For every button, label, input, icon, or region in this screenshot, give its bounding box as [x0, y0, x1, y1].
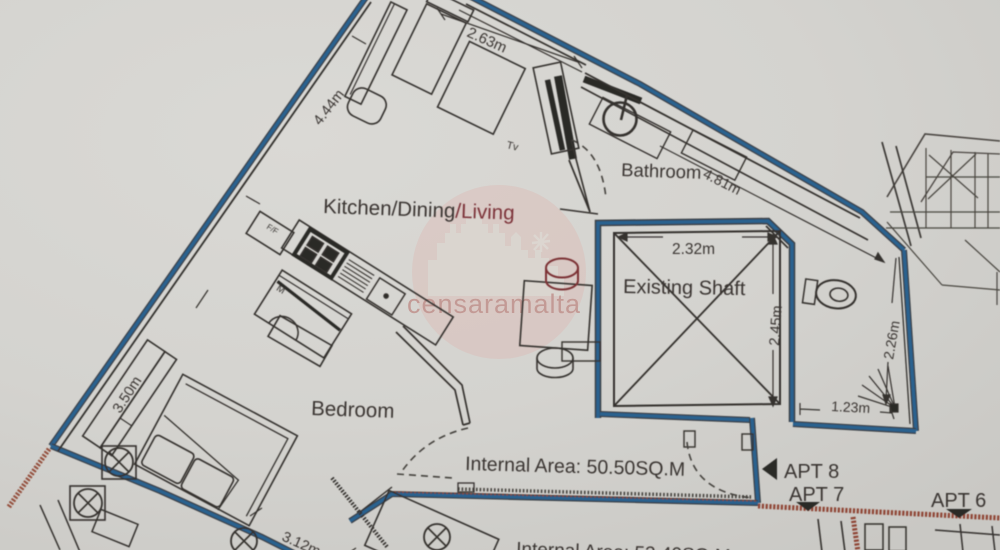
svg-text:2.45m: 2.45m: [767, 305, 786, 346]
svg-text:APT 8: APT 8: [784, 461, 839, 483]
svg-text:Bathroom: Bathroom: [621, 159, 702, 183]
svg-text:APT 6: APT 6: [931, 490, 986, 512]
svg-text:2.32m: 2.32m: [672, 241, 715, 258]
svg-text:1.23m: 1.23m: [831, 398, 871, 416]
svg-text:Existing Shaft: Existing Shaft: [623, 276, 746, 300]
svg-text:Bedroom: Bedroom: [311, 397, 395, 423]
